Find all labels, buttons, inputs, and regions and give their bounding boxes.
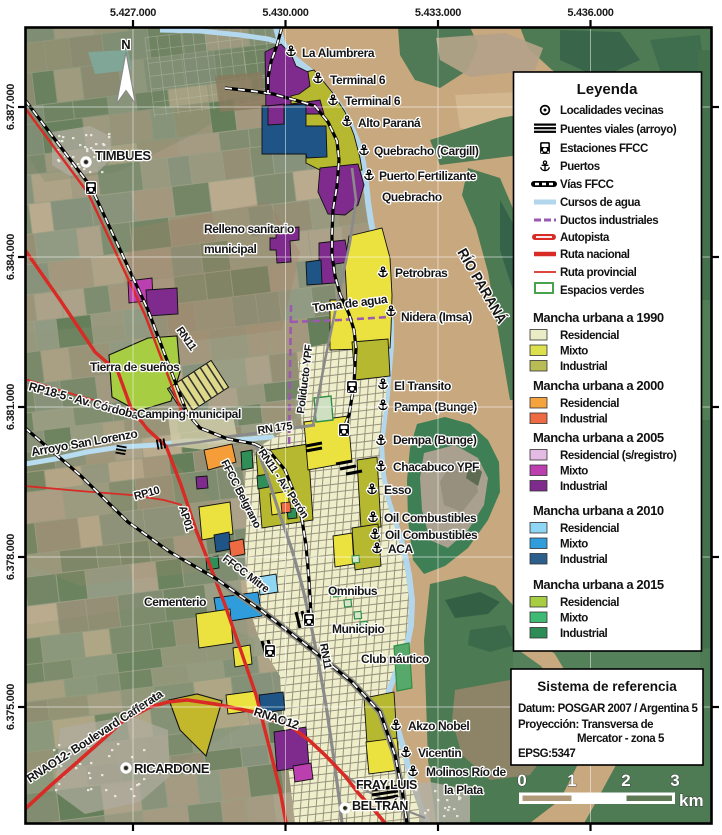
svg-text:Dempa (Bunge): Dempa (Bunge) [393,433,477,447]
svg-text:Oil Combustibles: Oil Combustibles [384,511,477,525]
svg-text:Chacabuco YPF: Chacabuco YPF [393,460,479,474]
svg-text:2: 2 [621,771,630,790]
svg-text:TIMBUES: TIMBUES [95,148,151,163]
svg-text:Terminal 6: Terminal 6 [345,94,401,108]
svg-text:BELTRÁN: BELTRÁN [352,798,408,813]
svg-text:Espacios verdes: Espacios verdes [560,285,644,297]
svg-text:Tierra de sueños: Tierra de sueños [90,360,180,374]
svg-text:Terminal 6: Terminal 6 [330,73,386,87]
svg-text:Industrial: Industrial [560,361,608,373]
svg-text:Municipio: Municipio [332,622,384,636]
svg-text:6.381.000: 6.381.000 [5,384,17,430]
svg-text:0: 0 [517,771,526,790]
svg-text:Cursos de agua: Cursos de agua [560,197,641,209]
svg-text:Vicentin: Vicentin [418,746,461,760]
svg-text:Club náutico: Club náutico [361,652,429,666]
svg-text:Oil Combustibles: Oil Combustibles [385,528,478,542]
svg-text:6.384.000: 6.384.000 [5,234,17,280]
svg-text:Petrobras: Petrobras [395,266,448,280]
svg-text:EPSG:5347: EPSG:5347 [518,748,575,760]
svg-text:Quebracho: Quebracho [382,190,442,204]
svg-text:Mixto: Mixto [560,539,588,551]
svg-text:Mixto: Mixto [560,466,588,478]
svg-text:Mancha urbana a 2005: Mancha urbana a 2005 [533,430,664,445]
svg-text:Sistema de referencia: Sistema de referencia [537,679,677,694]
svg-text:Proyección: Transversa de: Proyección: Transversa de [518,719,653,731]
svg-text:Industrial: Industrial [560,628,608,640]
svg-text:Nidera (Imsa): Nidera (Imsa) [401,310,472,324]
svg-text:La Alumbrera: La Alumbrera [302,46,375,60]
svg-text:ACA: ACA [388,542,414,556]
svg-text:Residencial: Residencial [560,330,619,342]
svg-text:6.375.000: 6.375.000 [5,684,17,730]
svg-text:Alto Paraná: Alto Paraná [358,116,421,130]
svg-text:Residencial: Residencial [560,523,619,535]
svg-text:Ductos industriales: Ductos industriales [560,215,658,227]
svg-text:la Plata: la Plata [444,783,484,797]
svg-text:Mixto: Mixto [560,346,588,358]
svg-text:6.378.000: 6.378.000 [5,534,17,580]
svg-text:Relleno sanitario: Relleno sanitario [204,222,294,236]
svg-text:Akzo Nobel: Akzo Nobel [408,719,469,733]
svg-text:Puentes viales (arroyo): Puentes viales (arroyo) [560,124,677,136]
svg-text:5.427.000: 5.427.000 [110,7,156,19]
svg-text:Mancha urbana a 2015: Mancha urbana a 2015 [533,577,664,592]
svg-text:municipal: municipal [204,242,256,256]
svg-text:3: 3 [670,771,679,790]
svg-text:RICARDONE: RICARDONE [134,761,210,776]
svg-text:Estaciones FFCC: Estaciones FFCC [560,143,648,155]
svg-text:Puertos: Puertos [560,161,600,173]
svg-text:Industrial: Industrial [560,481,608,493]
svg-text:Omnibus: Omnibus [328,584,378,598]
svg-text:Vías FFCC: Vías FFCC [560,179,614,191]
svg-text:Industrial: Industrial [560,554,608,566]
svg-text:Cementerio: Cementerio [144,595,206,609]
svg-text:Mancha urbana a 2010: Mancha urbana a 2010 [533,503,664,518]
svg-text:Residencial: Residencial [560,398,619,410]
svg-text:1: 1 [567,771,576,790]
svg-text:6.387.000: 6.387.000 [5,84,17,130]
svg-text:Mancha urbana a 2000: Mancha urbana a 2000 [533,378,664,393]
svg-text:5.430.000: 5.430.000 [262,7,308,19]
svg-text:Puerto Fertilizante: Puerto Fertilizante [379,169,477,183]
svg-text:Industrial: Industrial [560,414,608,426]
svg-text:5.436.000: 5.436.000 [567,7,613,19]
svg-text:Datum: POSGAR 2007 / Argentina: Datum: POSGAR 2007 / Argentina 5 [518,703,698,715]
svg-text:km: km [679,791,704,810]
svg-text:Residencial (s/registro): Residencial (s/registro) [560,450,677,462]
svg-text:Localidades vecinas: Localidades vecinas [560,105,663,117]
svg-text:Ruta provincial: Ruta provincial [560,267,637,279]
svg-text:Camping municipal: Camping municipal [137,407,241,421]
svg-text:Esso: Esso [384,483,411,497]
svg-text:Leyenda: Leyenda [577,81,639,98]
svg-text:Ruta nacional: Ruta nacional [560,249,630,261]
svg-text:Mancha urbana a 1990: Mancha urbana a 1990 [533,310,664,325]
svg-text:N: N [121,37,130,52]
svg-text:Mercator - zona 5: Mercator - zona 5 [577,733,665,745]
svg-text:FRAY LUIS: FRAY LUIS [356,778,417,792]
svg-text:Autopista: Autopista [560,232,610,244]
svg-text:Quebracho (Cargill): Quebracho (Cargill) [374,144,479,158]
svg-text:Residencial: Residencial [560,597,619,609]
svg-text:El Transito: El Transito [394,379,451,393]
svg-text:Mixto: Mixto [560,613,588,625]
svg-text:5.433.000: 5.433.000 [415,7,461,19]
